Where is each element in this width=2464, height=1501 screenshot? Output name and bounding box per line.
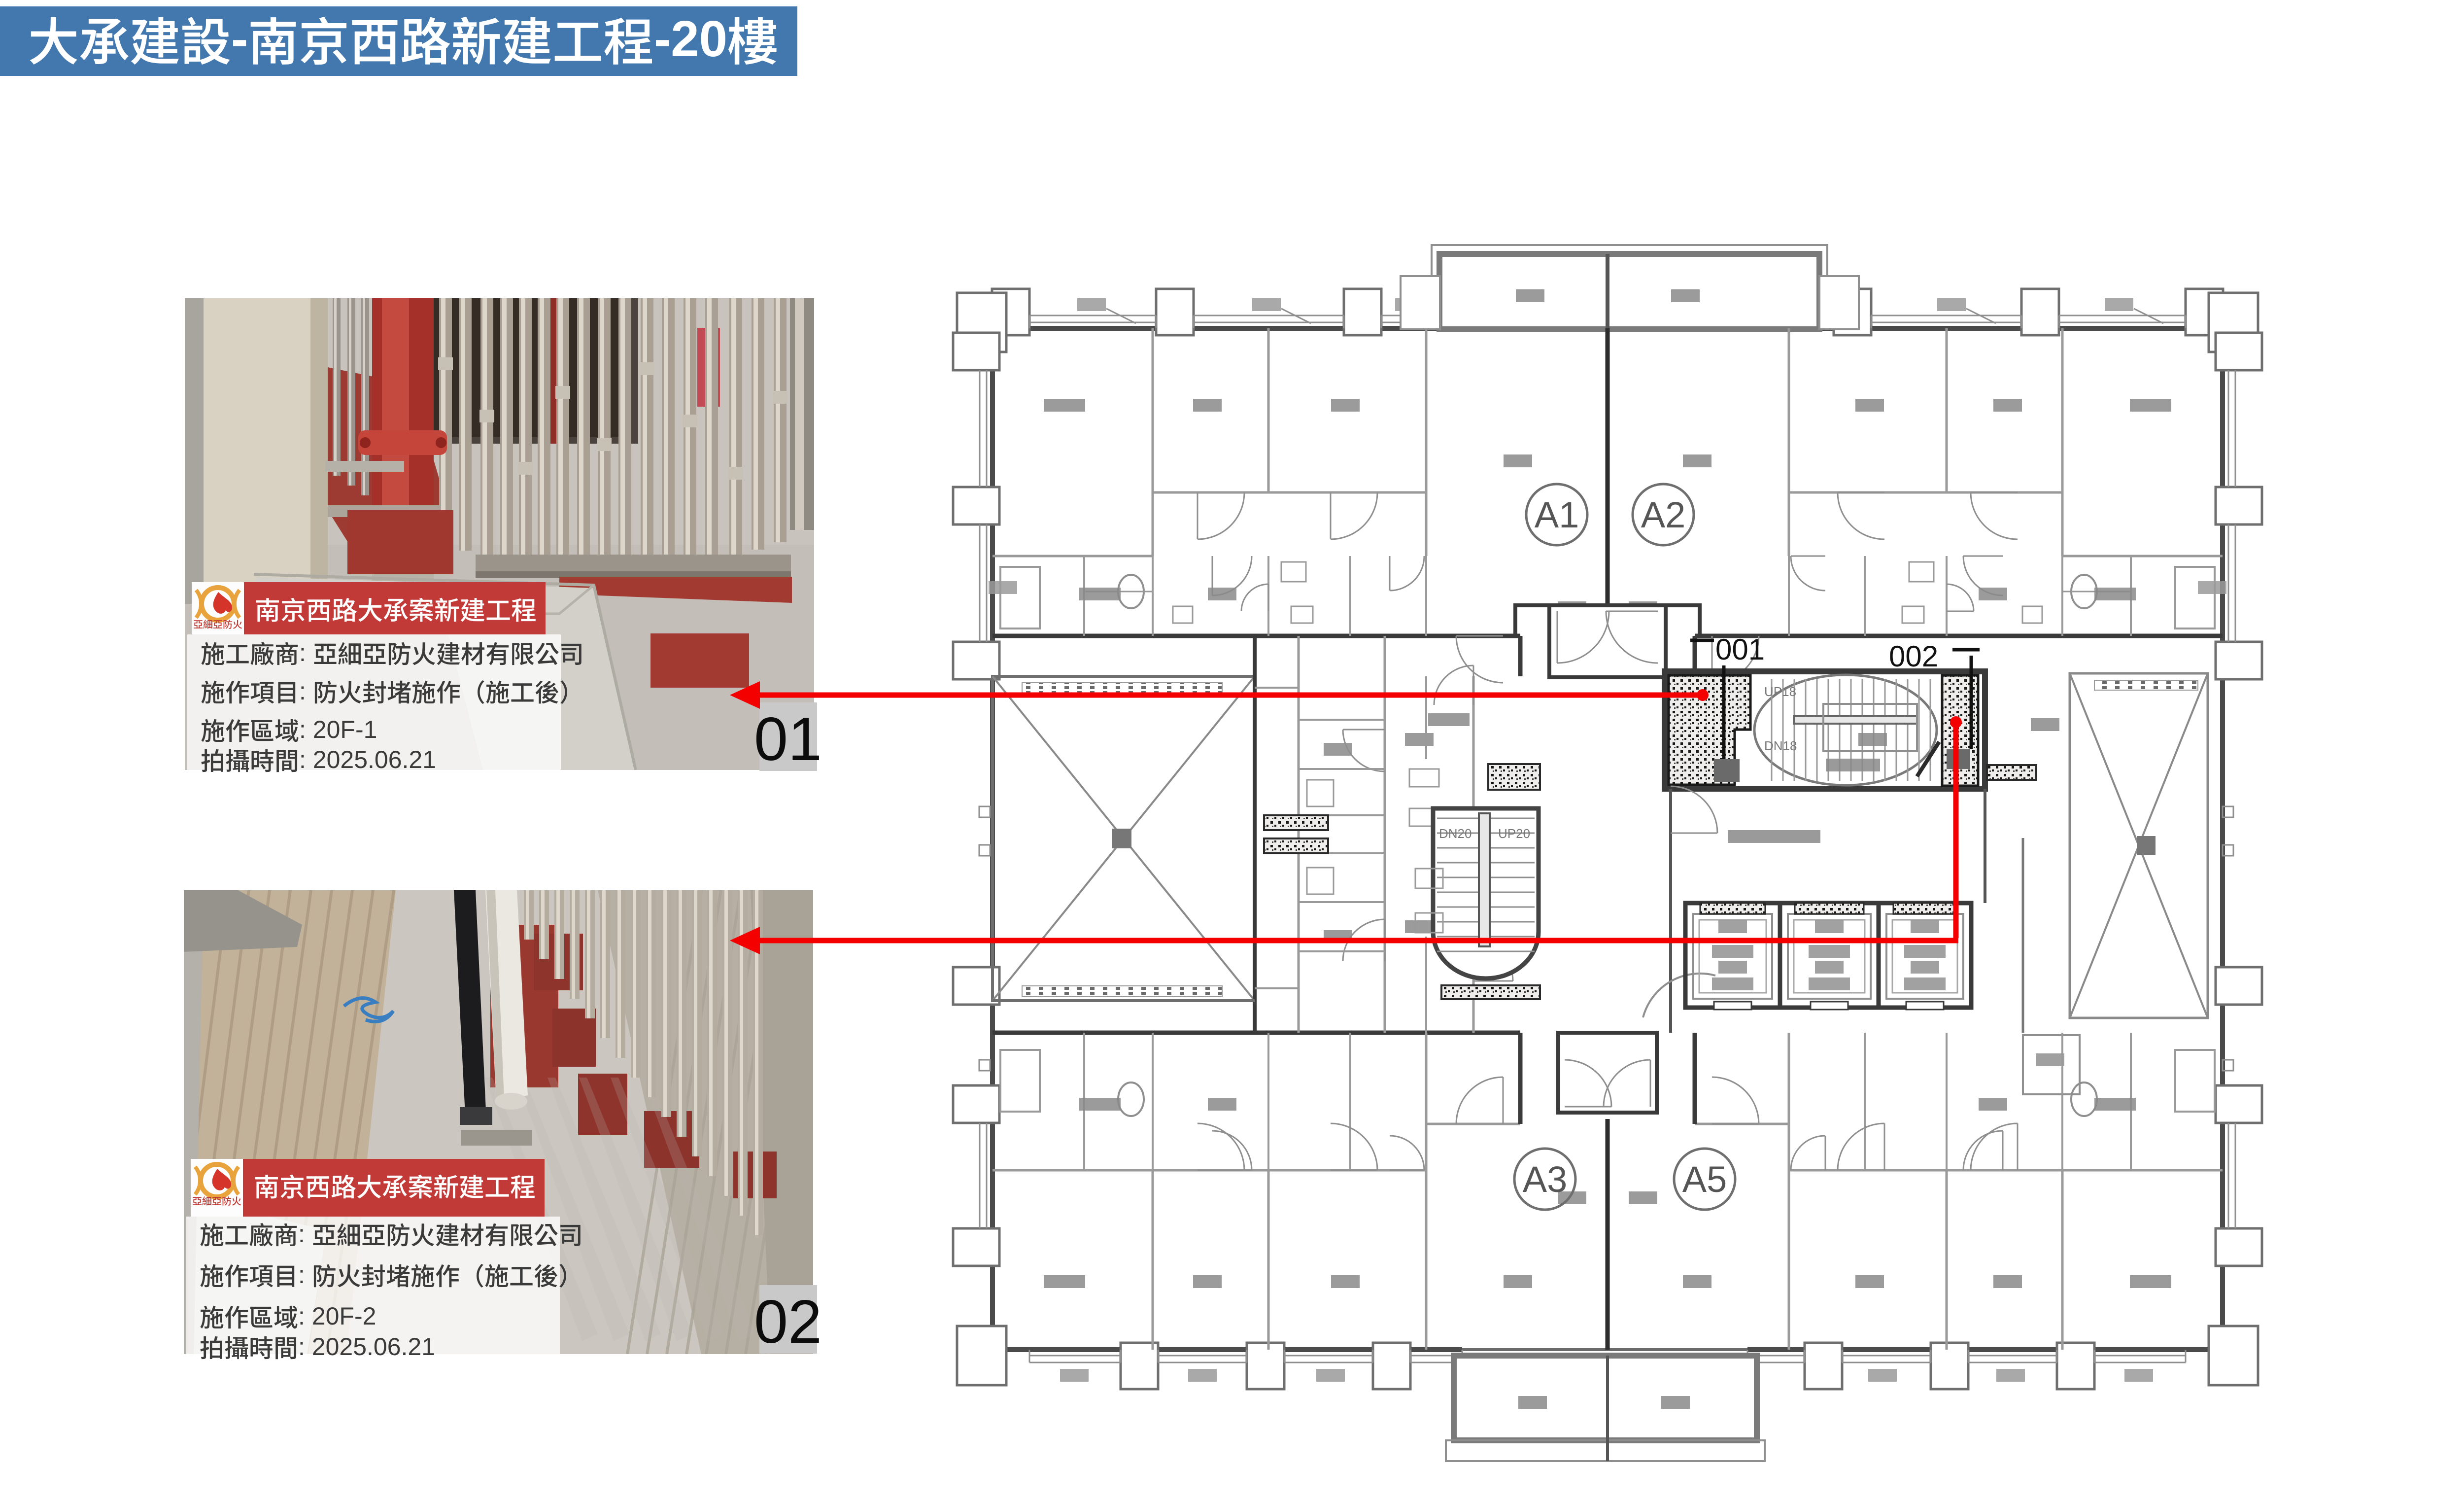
svg-text:-20: -20: [654, 10, 727, 67]
svg-text::: :: [298, 1261, 305, 1289]
svg-text:: 20F-1: : 20F-1: [299, 716, 377, 743]
svg-text:A1: A1: [1535, 494, 1579, 535]
svg-text:DN20: DN20: [1439, 826, 1472, 841]
svg-text::: :: [299, 639, 306, 666]
svg-text:A5: A5: [1682, 1159, 1727, 1200]
svg-text:01: 01: [754, 705, 822, 773]
svg-text::: :: [299, 677, 306, 705]
svg-text:UP20: UP20: [1498, 826, 1530, 841]
svg-text:-: -: [231, 10, 248, 67]
svg-text:02: 02: [754, 1288, 822, 1356]
svg-text:: 20F-2: : 20F-2: [298, 1302, 376, 1330]
svg-text:A2: A2: [1641, 494, 1686, 535]
svg-text:A3: A3: [1523, 1159, 1568, 1200]
svg-text:001: 001: [1715, 633, 1765, 666]
svg-text:: 2025.06.21: : 2025.06.21: [299, 746, 436, 773]
svg-text::: :: [298, 1220, 305, 1248]
svg-text:DN18: DN18: [1764, 738, 1797, 753]
svg-text:002: 002: [1889, 640, 1938, 673]
svg-text:: 2025.06.21: : 2025.06.21: [298, 1333, 435, 1361]
svg-text:UP18: UP18: [1764, 684, 1796, 699]
